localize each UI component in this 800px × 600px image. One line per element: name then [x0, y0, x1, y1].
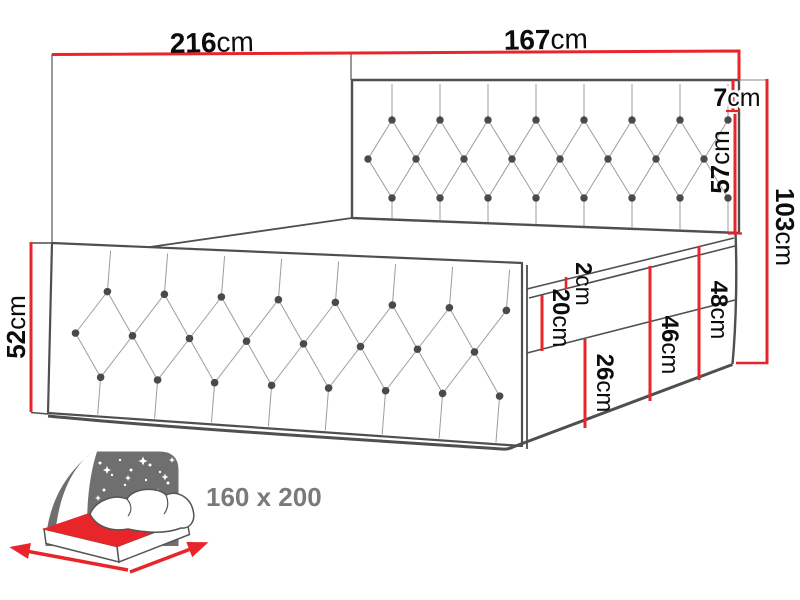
headboard-panel — [352, 80, 739, 233]
size-badge-label: 160 x 200 — [206, 482, 322, 512]
mattress-left-edge — [143, 218, 352, 248]
label-mattress-thickness: 20cm — [547, 289, 574, 348]
footboard-panel — [48, 243, 522, 446]
label-mattress-plus-base: 46cm — [656, 316, 683, 375]
label-side-height: 48cm — [705, 281, 732, 340]
label-footboard-height: 52cm — [1, 295, 31, 359]
bed-size-icon — [14, 452, 204, 573]
label-total-height: 103cm — [770, 188, 800, 266]
label-mattress-width: 167cm — [504, 23, 589, 55]
dimension-line-width — [52, 51, 739, 80]
rear-right-edge — [733, 232, 737, 364]
side-line-mattress-top — [527, 238, 734, 289]
label-base-height: 26cm — [591, 354, 618, 413]
bed-dimension-diagram: 216cm 167cm 7cm 57cm 103cm 52cm 2cm 20cm… — [0, 0, 800, 600]
label-headboard-frame: 7cm — [713, 84, 760, 112]
label-total-width: 216cm — [169, 26, 254, 59]
diagram-canvas: 216cm 167cm 7cm 57cm 103cm 52cm 2cm 20cm… — [0, 0, 800, 600]
label-headboard-panel: 57cm — [705, 130, 735, 194]
